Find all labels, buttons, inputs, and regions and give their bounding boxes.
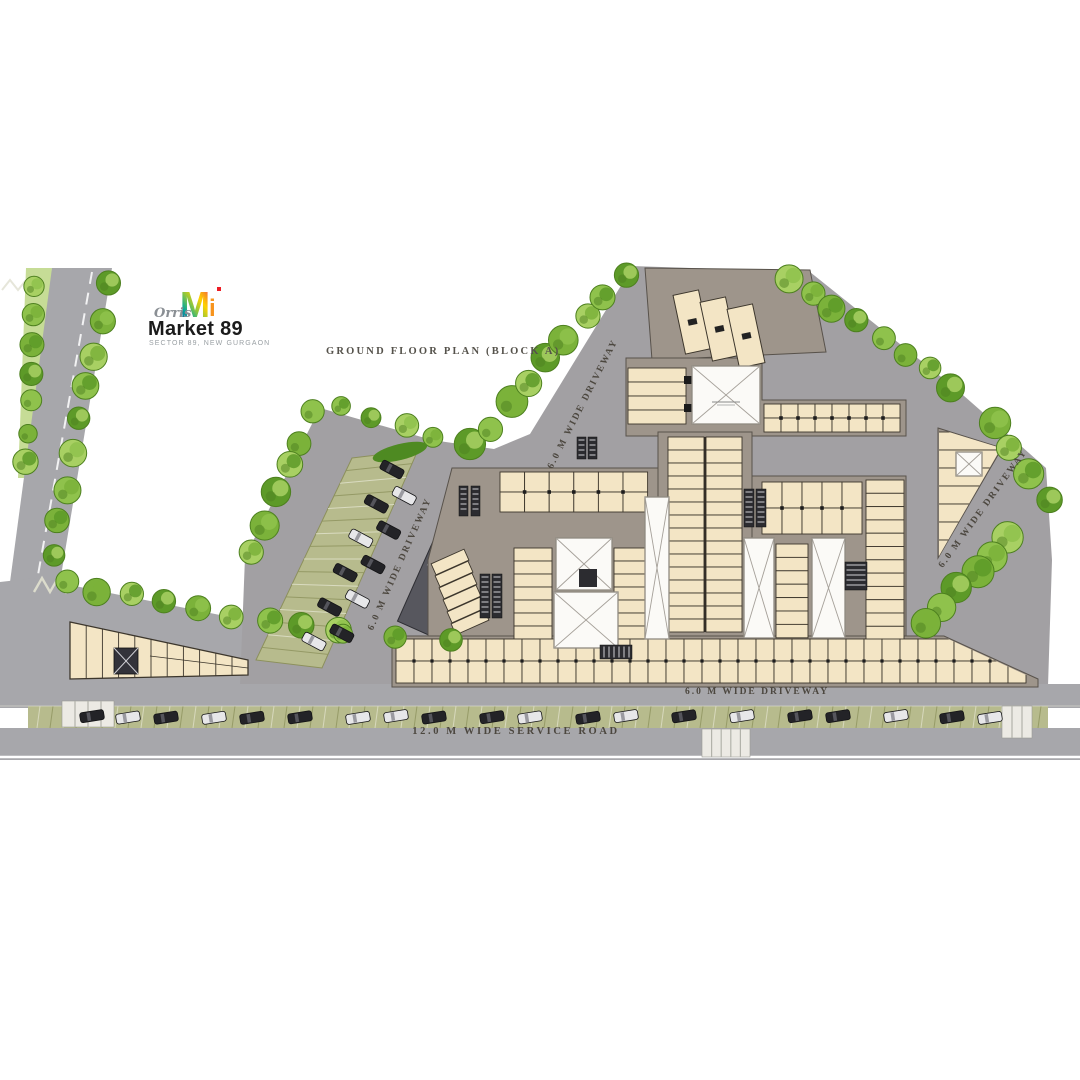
- shop-unit: [706, 580, 742, 593]
- shop-unit: [668, 554, 704, 567]
- shop-unit: [432, 661, 450, 683]
- shop-unit: [628, 410, 686, 424]
- shop-unit: [623, 492, 648, 512]
- shop-unit: [738, 639, 756, 661]
- shop-unit: [504, 661, 522, 683]
- shop-unit: [776, 624, 808, 637]
- shop-unit: [706, 515, 742, 528]
- shop-unit: [486, 639, 504, 661]
- shop-unit: [684, 661, 702, 683]
- shop-unit: [706, 593, 742, 606]
- shop-unit: [648, 661, 666, 683]
- shop-unit: [706, 502, 742, 515]
- shop-unit: [706, 554, 742, 567]
- shop-unit: [668, 606, 704, 619]
- tree: [24, 276, 44, 296]
- tree: [54, 477, 81, 504]
- tree: [873, 327, 896, 350]
- tree: [21, 390, 42, 411]
- tree: [152, 589, 175, 612]
- shop-unit: [866, 573, 904, 586]
- south-shops: [396, 639, 1026, 683]
- tree: [818, 295, 845, 322]
- shop-unit: [846, 661, 864, 683]
- service-road-label: 12.0 M WIDE SERVICE ROAD: [412, 726, 619, 737]
- shop-unit: [866, 418, 883, 432]
- shop-unit: [832, 418, 849, 432]
- shop-unit: [576, 661, 594, 683]
- shop-unit: [776, 584, 808, 597]
- tree: [845, 309, 868, 332]
- shop-unit: [815, 404, 832, 418]
- shop-unit: [866, 533, 904, 546]
- anchor-store: [812, 538, 845, 638]
- tree: [20, 362, 43, 385]
- shop-unit: [936, 661, 954, 683]
- column-post: [780, 506, 784, 510]
- tree: [258, 608, 283, 633]
- shop-unit: [614, 548, 646, 561]
- shop-unit: [668, 476, 704, 489]
- shop-unit: [866, 626, 904, 639]
- column-post: [547, 490, 551, 494]
- shop-unit: [684, 639, 702, 661]
- escalator: [480, 574, 490, 618]
- tree: [120, 582, 143, 605]
- shop-unit: [486, 661, 504, 683]
- shop-unit: [558, 661, 576, 683]
- shop-unit: [574, 472, 599, 492]
- shop-unit: [514, 600, 552, 613]
- site-plan-drawing: 6.0 M WIDE DRIVEWAY 6.0 M WIDE DRIVEWAY …: [0, 0, 1080, 1080]
- shop-unit: [756, 661, 774, 683]
- shop-unit: [706, 567, 742, 580]
- shop-unit: [514, 548, 552, 561]
- shop-unit: [764, 404, 781, 418]
- tree: [19, 425, 37, 443]
- shop-unit: [866, 600, 904, 613]
- shop-unit: [972, 661, 990, 683]
- escalator: [756, 489, 766, 527]
- shop-unit: [866, 404, 883, 418]
- shop-unit: [514, 574, 552, 587]
- shop-unit: [614, 574, 646, 587]
- column-post: [800, 506, 804, 510]
- shop-unit: [866, 560, 904, 573]
- tree: [478, 417, 502, 441]
- shop-unit: [706, 489, 742, 502]
- shop-unit: [774, 639, 792, 661]
- plan-title: GROUND FLOOR PLAN (BLOCK A): [326, 346, 560, 357]
- shop-unit: [782, 482, 802, 508]
- shop-unit: [798, 404, 815, 418]
- shop-unit: [668, 567, 704, 580]
- shop-unit: [776, 571, 808, 584]
- tree: [395, 414, 419, 438]
- shop-unit: [706, 463, 742, 476]
- tree: [277, 452, 303, 478]
- brand-tagline: SECTOR 89, NEW GURGAON: [149, 340, 270, 347]
- tree: [90, 309, 115, 334]
- tree: [56, 570, 79, 593]
- shop-unit: [832, 404, 849, 418]
- shop-unit: [802, 508, 822, 534]
- shop-unit: [864, 661, 882, 683]
- tree: [67, 407, 89, 429]
- shop-unit: [842, 508, 862, 534]
- anchor-store: [645, 497, 669, 639]
- tree: [22, 304, 44, 326]
- shop-unit: [846, 639, 864, 661]
- shop-unit: [706, 619, 742, 632]
- shop-unit: [866, 507, 904, 520]
- shop-unit: [900, 661, 918, 683]
- tree: [384, 626, 406, 648]
- column-post: [621, 490, 625, 494]
- stair-core: [579, 569, 597, 587]
- anchor-store: [956, 452, 982, 476]
- shop-unit: [706, 528, 742, 541]
- escalator: [845, 562, 867, 590]
- shop-unit: [668, 593, 704, 606]
- shop-unit: [614, 587, 646, 600]
- shop-unit: [720, 661, 738, 683]
- shop-unit: [396, 661, 414, 683]
- shop-unit: [668, 437, 704, 450]
- shop-unit: [882, 661, 900, 683]
- shop-unit: [450, 661, 468, 683]
- shop-unit: [792, 639, 810, 661]
- shop-unit: [514, 626, 552, 639]
- escalator: [744, 489, 754, 527]
- shop-unit: [866, 493, 904, 506]
- shop-unit: [954, 661, 972, 683]
- tree: [72, 373, 99, 400]
- shop-unit: [866, 547, 904, 560]
- tree: [80, 343, 107, 370]
- tree: [59, 439, 86, 466]
- tree: [332, 397, 351, 416]
- shop-unit: [882, 639, 900, 661]
- shop-unit: [864, 639, 882, 661]
- tree: [250, 511, 279, 540]
- tree: [43, 545, 65, 567]
- shop-unit: [706, 541, 742, 554]
- site-plan-canvas: 6.0 M WIDE DRIVEWAY 6.0 M WIDE DRIVEWAY …: [0, 0, 1080, 1080]
- shop-unit: [628, 396, 686, 410]
- shop-unit: [630, 661, 648, 683]
- escalator: [588, 437, 597, 459]
- shop-unit: [815, 418, 832, 432]
- column-post: [779, 416, 783, 420]
- shop-unit: [822, 482, 842, 508]
- shop-unit: [802, 482, 822, 508]
- brand-name: Market 89: [148, 318, 243, 341]
- tree: [775, 265, 803, 293]
- shop-unit: [666, 661, 684, 683]
- escalator: [577, 437, 586, 459]
- shop-unit: [612, 661, 630, 683]
- shop-unit: [828, 661, 846, 683]
- shop-unit: [598, 492, 623, 512]
- column-post: [830, 416, 834, 420]
- tree: [937, 374, 965, 402]
- column-post: [864, 416, 868, 420]
- tree: [894, 344, 917, 367]
- tree: [440, 629, 463, 652]
- shop-unit: [918, 661, 936, 683]
- shop-unit: [810, 639, 828, 661]
- shop-unit: [706, 437, 742, 450]
- shop-unit: [468, 661, 486, 683]
- column-post: [820, 506, 824, 510]
- shop-unit: [866, 613, 904, 626]
- shop-unit: [918, 639, 936, 661]
- tree: [83, 578, 110, 605]
- column-post: [881, 416, 885, 420]
- shop-unit: [668, 489, 704, 502]
- shop-unit: [883, 418, 900, 432]
- shop-unit: [598, 472, 623, 492]
- shop-unit: [614, 561, 646, 574]
- column-post: [847, 416, 851, 420]
- shop-unit: [504, 639, 522, 661]
- tree: [301, 400, 324, 423]
- shop-unit: [776, 598, 808, 611]
- tree: [1037, 487, 1062, 512]
- tree: [979, 407, 1010, 438]
- tree: [45, 508, 69, 532]
- shop-unit: [781, 418, 798, 432]
- column-post: [572, 490, 576, 494]
- shop-unit: [828, 639, 846, 661]
- crossing: [1002, 706, 1032, 738]
- shop-unit: [706, 476, 742, 489]
- shop-unit: [883, 404, 900, 418]
- shop-unit: [414, 661, 432, 683]
- shop-unit: [549, 492, 574, 512]
- shop-unit: [776, 611, 808, 624]
- shop-unit: [668, 541, 704, 554]
- shop-unit: [549, 472, 574, 492]
- shop-unit: [756, 639, 774, 661]
- tree: [516, 370, 542, 396]
- column-post: [597, 490, 601, 494]
- shop-unit: [782, 508, 802, 534]
- column-post: [840, 506, 844, 510]
- shop-unit: [628, 368, 686, 382]
- shop-unit: [522, 639, 540, 661]
- shop-unit: [792, 661, 810, 683]
- shop-unit: [849, 418, 866, 432]
- shop-unit: [776, 544, 808, 557]
- shop-unit: [500, 472, 525, 492]
- shop-unit: [936, 639, 954, 661]
- shop-unit: [866, 480, 904, 493]
- driveway-label-south: 6.0 M WIDE DRIVEWAY: [685, 687, 829, 697]
- shop-unit: [774, 661, 792, 683]
- tree: [13, 449, 38, 474]
- shop-unit: [822, 508, 842, 534]
- shop-unit: [630, 639, 648, 661]
- door-mark: [684, 404, 692, 412]
- escalator: [459, 486, 468, 516]
- tree: [261, 477, 290, 506]
- tree: [361, 408, 381, 428]
- shop-unit: [668, 502, 704, 515]
- column-post: [796, 416, 800, 420]
- shop-unit: [668, 528, 704, 541]
- shop-unit: [776, 557, 808, 570]
- shop-unit: [594, 661, 612, 683]
- anchor-store: [744, 538, 774, 638]
- shop-unit: [614, 600, 646, 613]
- tree: [20, 333, 44, 357]
- shop-unit: [540, 661, 558, 683]
- shop-unit: [720, 639, 738, 661]
- shop-unit: [866, 520, 904, 533]
- shop-unit: [702, 639, 720, 661]
- shop-unit: [525, 492, 550, 512]
- escalator: [471, 486, 480, 516]
- tree: [239, 540, 263, 564]
- shop-unit: [623, 472, 648, 492]
- shop-unit: [668, 515, 704, 528]
- shop-unit: [706, 606, 742, 619]
- south-driveway: [0, 684, 1080, 708]
- escalator: [492, 574, 502, 618]
- tree: [219, 605, 243, 629]
- tree: [911, 609, 940, 638]
- anchor-store: [692, 366, 760, 424]
- shop-unit: [764, 418, 781, 432]
- escalator: [600, 645, 632, 659]
- shop-unit: [810, 661, 828, 683]
- shop-unit: [668, 580, 704, 593]
- shop-unit: [614, 613, 646, 626]
- shop-unit: [628, 382, 686, 396]
- shop-unit: [706, 450, 742, 463]
- shop-unit: [900, 639, 918, 661]
- shop-unit: [738, 661, 756, 683]
- shop-unit: [842, 482, 862, 508]
- column-post: [523, 490, 527, 494]
- shop-unit: [798, 418, 815, 432]
- shop-unit: [666, 639, 684, 661]
- column-post: [813, 416, 817, 420]
- shop-unit: [781, 404, 798, 418]
- tree: [96, 271, 120, 295]
- tree: [614, 263, 638, 287]
- shop-unit: [525, 472, 550, 492]
- shop-unit: [668, 619, 704, 632]
- crossing: [702, 729, 750, 757]
- shop-unit: [514, 561, 552, 574]
- shop-unit: [702, 661, 720, 683]
- shop-unit: [614, 626, 646, 639]
- anchor-store: [554, 592, 618, 648]
- shop-unit: [668, 450, 704, 463]
- shop-unit: [849, 404, 866, 418]
- shop-unit: [574, 492, 599, 512]
- shop-unit: [500, 492, 525, 512]
- shop-unit: [514, 587, 552, 600]
- shop-unit: [648, 639, 666, 661]
- tree: [919, 357, 941, 379]
- tree: [590, 285, 615, 310]
- shop-unit: [866, 586, 904, 599]
- shop-unit: [668, 463, 704, 476]
- door-mark: [684, 376, 692, 384]
- monogram-accent: [217, 287, 221, 291]
- shop-unit: [468, 639, 486, 661]
- shop-unit: [414, 639, 432, 661]
- tree: [186, 596, 211, 621]
- shop-unit: [522, 661, 540, 683]
- shop-unit: [514, 613, 552, 626]
